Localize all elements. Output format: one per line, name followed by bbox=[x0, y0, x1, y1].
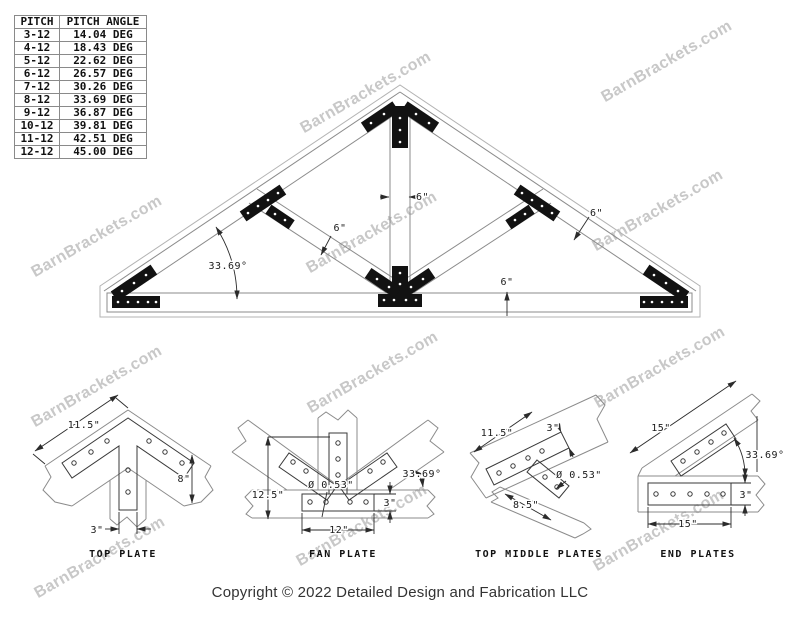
table-row: 10-1239.81 DEG bbox=[15, 120, 147, 133]
table-cell: 33.69 DEG bbox=[60, 94, 147, 107]
dim-top-middle-bar-width: 3" bbox=[546, 423, 559, 434]
table-cell: 18.43 DEG bbox=[60, 42, 147, 55]
copyright-text: Copyright © 2022 Detailed Design and Fab… bbox=[0, 584, 800, 601]
top-plate-dimensions: 11.5" 8" 3" bbox=[33, 395, 192, 536]
table-row: 4-1218.43 DEG bbox=[15, 42, 147, 55]
table-row: 8-1233.69 DEG bbox=[15, 94, 147, 107]
table-cell: 4-12 bbox=[15, 42, 60, 55]
bracket-left-mid bbox=[240, 185, 295, 230]
dim-end-plates-bar-height: 3" bbox=[739, 490, 752, 501]
fan-plate-caption: FAN PLATE bbox=[309, 549, 377, 560]
table-cell: 6-12 bbox=[15, 68, 60, 81]
table-cell: 42.51 DEG bbox=[60, 133, 147, 146]
dim-rafter-thickness: 6" bbox=[590, 208, 603, 219]
table-row: 5-1222.62 DEG bbox=[15, 55, 147, 68]
detail-end-plates: 15" 33.69° 3" 15" END PLATES bbox=[630, 381, 785, 560]
table-cell: 12-12 bbox=[15, 146, 60, 159]
end-plates-caption: END PLATES bbox=[660, 549, 735, 560]
dim-pitch-angle: 33.69° bbox=[208, 261, 247, 272]
bracket-right-mid bbox=[505, 185, 560, 230]
dim-top-middle-bar-length: 11.5" bbox=[481, 428, 514, 439]
table-row: 3-1214.04 DEG bbox=[15, 29, 147, 42]
pitch-angle-table: PITCH PITCH ANGLE 3-1214.04 DEG4-1218.43… bbox=[14, 15, 147, 159]
truss-diagram: 6" 6" 6" 6" 33.69° bbox=[100, 85, 700, 317]
dim-fan-plate-bar-height: 3" bbox=[383, 498, 396, 509]
table-row: 12-1245.00 DEG bbox=[15, 146, 147, 159]
table-cell: 39.81 DEG bbox=[60, 120, 147, 133]
bracket-left-heel bbox=[111, 265, 160, 308]
dim-top-plate-stem-width: 3" bbox=[90, 525, 103, 536]
table-cell: 10-12 bbox=[15, 120, 60, 133]
dim-fan-plate-hole-diameter: Ø 0.53" bbox=[308, 479, 354, 491]
page: BarnBrackets.comBarnBrackets.comBarnBrac… bbox=[0, 0, 800, 618]
member-right-rafter bbox=[400, 92, 696, 291]
table-cell: 3-12 bbox=[15, 29, 60, 42]
dim-end-plates-angle: 33.69° bbox=[745, 450, 784, 461]
table-cell: 36.87 DEG bbox=[60, 107, 147, 120]
dim-web-thickness: 6" bbox=[333, 223, 346, 234]
detail-fan-plate: 12.5" Ø 0.53" 3" 12" 33.69° FAN PLATE bbox=[232, 410, 444, 560]
dim-king-post-width: 6" bbox=[416, 192, 429, 203]
table-cell: 9-12 bbox=[15, 107, 60, 120]
dim-top-middle-hole-diameter: Ø 0.53" bbox=[556, 469, 602, 481]
dim-top-middle-stem-length: 8.5" bbox=[513, 500, 539, 511]
bracket-apex bbox=[361, 101, 439, 148]
member-left-rafter bbox=[104, 92, 400, 291]
top-plate-caption: TOP PLATE bbox=[89, 549, 157, 560]
table-cell: 8-12 bbox=[15, 94, 60, 107]
table-cell: 45.00 DEG bbox=[60, 146, 147, 159]
dim-top-plate-arm-length: 11.5" bbox=[68, 420, 101, 431]
table-cell: 22.62 DEG bbox=[60, 55, 147, 68]
bracket-bottom-center bbox=[365, 266, 436, 307]
table-row: 11-1242.51 DEG bbox=[15, 133, 147, 146]
table-row: 9-1236.87 DEG bbox=[15, 107, 147, 120]
dim-fan-plate-angle: 33.69° bbox=[402, 469, 441, 480]
pitch-table-body: 3-1214.04 DEG4-1218.43 DEG5-1222.62 DEG6… bbox=[15, 29, 147, 159]
dim-end-plates-rafter-length: 15" bbox=[651, 423, 671, 434]
dim-end-plates-base-length: 15" bbox=[678, 519, 698, 530]
bracket-right-heel bbox=[640, 265, 689, 308]
dim-chord-thickness: 6" bbox=[500, 277, 513, 288]
pitch-column-header: PITCH bbox=[15, 16, 60, 29]
detail-top-plate: 11.5" 8" 3" TOP PLATE bbox=[33, 395, 213, 560]
detail-top-middle-plates: 11.5" 3" Ø 0.53" 8.5" TOP MIDDLE PLATES bbox=[470, 395, 608, 560]
table-cell: 14.04 DEG bbox=[60, 29, 147, 42]
top-middle-plates-caption: TOP MIDDLE PLATES bbox=[475, 549, 603, 560]
dim-fan-plate-height: 12.5" bbox=[252, 490, 285, 501]
table-cell: 7-12 bbox=[15, 81, 60, 94]
table-header-row: PITCH PITCH ANGLE bbox=[15, 16, 147, 29]
table-cell: 11-12 bbox=[15, 133, 60, 146]
dim-top-plate-beam-height: 8" bbox=[177, 474, 190, 485]
dim-fan-plate-bar-length: 12" bbox=[329, 525, 349, 536]
table-cell: 30.26 DEG bbox=[60, 81, 147, 94]
table-cell: 26.57 DEG bbox=[60, 68, 147, 81]
table-row: 7-1230.26 DEG bbox=[15, 81, 147, 94]
pitch-angle-column-header: PITCH ANGLE bbox=[60, 16, 147, 29]
table-cell: 5-12 bbox=[15, 55, 60, 68]
table-row: 6-1226.57 DEG bbox=[15, 68, 147, 81]
